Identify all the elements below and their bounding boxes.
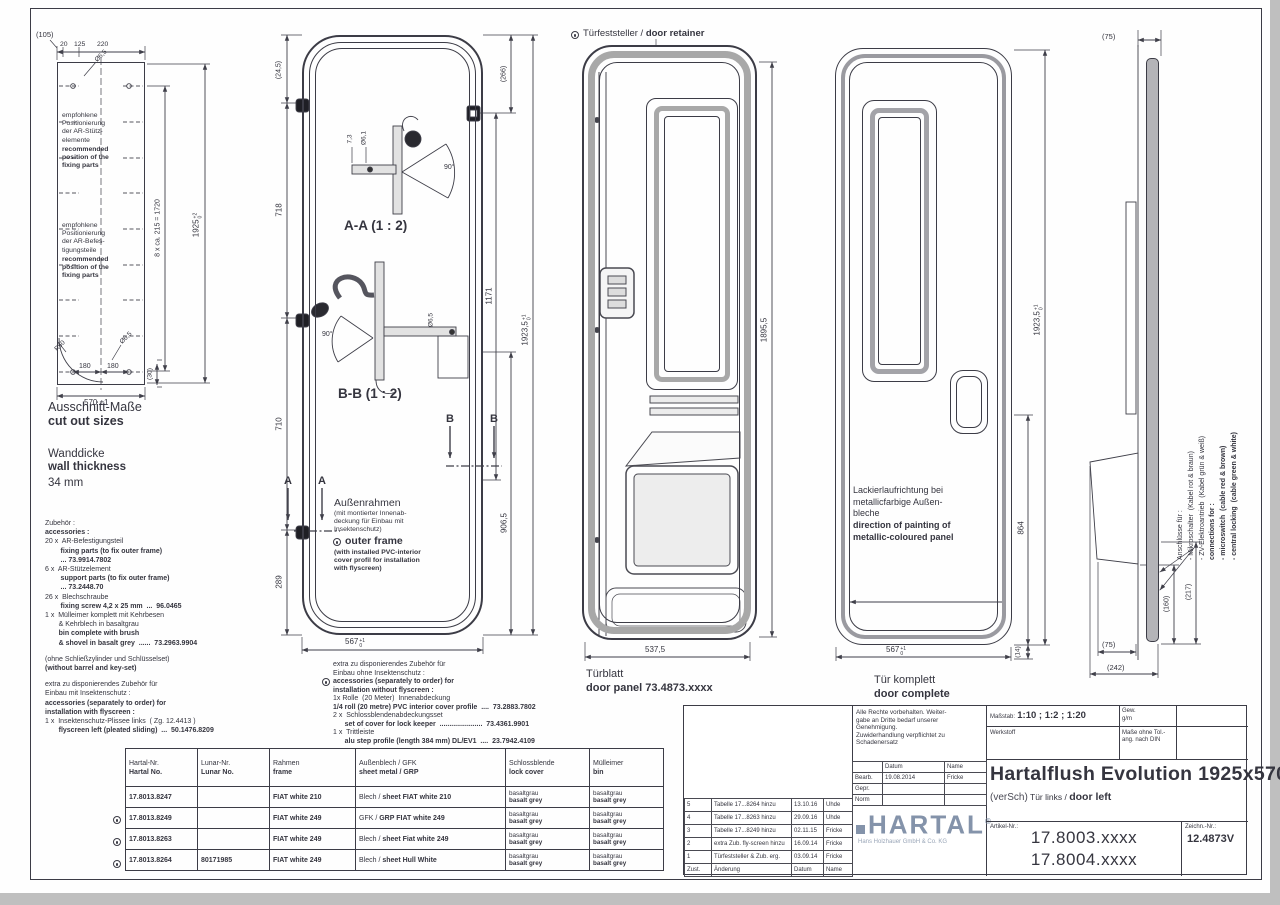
dim-label: 1923,5+10 bbox=[1032, 304, 1043, 335]
note-text: recommended position of the fixing parts bbox=[62, 256, 109, 281]
list-item: - ZV-Elektroantrieb (Kabel grün & weiß) bbox=[1198, 324, 1209, 560]
list-item: accessories : bbox=[45, 528, 214, 537]
frame-note-body: (with installed PVC-interior cover profi… bbox=[334, 549, 421, 574]
text-bold: accessories : bbox=[45, 529, 89, 536]
reference-balloon-icon bbox=[322, 678, 330, 686]
text-normal: & Kehrblech in basaltgrau bbox=[45, 621, 139, 628]
column-header: Außenblech / GFKsheet metal / GRP bbox=[356, 749, 506, 787]
text-bold: accessories (separately to order) for bbox=[333, 678, 454, 685]
dim-label: 1925+20 bbox=[191, 213, 202, 238]
divider bbox=[986, 821, 1248, 822]
dim-label: 125 bbox=[74, 41, 85, 48]
list-item: accessories (separately to order) for bbox=[45, 699, 214, 708]
dim-label: 20 bbox=[60, 41, 68, 48]
screenshot-root: { "sheet": {"ink":"#35353f","logo_color"… bbox=[0, 0, 1280, 905]
list-item: 2 x Schlossblendenabdeckungsset bbox=[333, 712, 536, 721]
text-bold: connections for : bbox=[1209, 503, 1216, 560]
scan-edge-bottom bbox=[0, 893, 1280, 905]
list-item: installation with flyscreen : bbox=[45, 708, 214, 717]
dim-label: 1895,5 bbox=[760, 318, 769, 342]
rev-name: Fricke bbox=[824, 851, 853, 864]
frame-note-title: Außenrahmen bbox=[334, 497, 401, 509]
reference-balloon-icon bbox=[113, 838, 121, 846]
rev-date: 13.10.16 bbox=[792, 799, 824, 812]
wall-thickness-label: Wanddicke bbox=[48, 448, 104, 460]
cell-lunar-no bbox=[198, 829, 270, 850]
cell-bin: basaltgraubasalt grey bbox=[590, 787, 664, 808]
note-text: recommended position of the fixing parts bbox=[62, 146, 109, 171]
cell-hartal-no: 17.8013.8264 bbox=[126, 850, 198, 871]
reference-balloon-icon bbox=[113, 816, 121, 824]
drawing-sheet: (105) 20 125 220 Ø6,5 empfohlene Positio… bbox=[0, 0, 1280, 893]
header-de: Hartal-Nr. bbox=[129, 760, 159, 767]
cell-lock-cover: basaltgraubasalt grey bbox=[506, 850, 590, 871]
list-item: - microswitch (cable red & brown) bbox=[1219, 324, 1230, 560]
text-normal: Einbau mit Insektenschutz : bbox=[45, 690, 131, 697]
list-item: Einbau mit Insektenschutz : bbox=[45, 689, 214, 698]
rev-index: 5 bbox=[685, 799, 712, 812]
cell-bin: basaltgraubasalt grey bbox=[590, 829, 664, 850]
header-en: Hartal No. bbox=[129, 769, 162, 776]
rev-change: Türfeststeller & Zub. erg. bbox=[712, 851, 792, 864]
list-item: & shovel in basalt grey ...... 73.2963.9… bbox=[45, 639, 214, 648]
dim-label: 906,5 bbox=[500, 513, 509, 533]
approval-row: Bearb.19.08.2014Fricke bbox=[853, 773, 987, 784]
section-label: B-B (1 : 2) bbox=[338, 386, 402, 401]
text-normal: 2 x Schlossblendenabdeckungsset bbox=[333, 712, 443, 719]
text-normal: Einbau ohne Insektenschutz : bbox=[333, 670, 425, 677]
extra-accessories-note: extra z​u disponierendes Zubehör fürEinb… bbox=[333, 661, 536, 746]
scale-field: Maßstab: 1:10 ; 1:2 ; 1:20 bbox=[990, 710, 1086, 721]
cell-sheet: Blech / sheet FIAT white 210 bbox=[356, 787, 506, 808]
list-item: 6 x AR-Stützelement bbox=[45, 565, 214, 574]
list-item: 20 x AR-Befestigungsteil bbox=[45, 537, 214, 546]
view-title: door panel 73.4873.xxxx bbox=[586, 682, 713, 694]
article-no-2: 17.8004.xxxx bbox=[994, 850, 1174, 870]
view-title: Türblatt bbox=[586, 668, 623, 680]
text-bold: 1/4 roll (20 metre) PVC interior cover p… bbox=[333, 704, 536, 711]
drawing-no-label: Zeichn.-Nr.: bbox=[1185, 824, 1216, 830]
rev-footer: Zust. bbox=[685, 864, 712, 877]
rev-index: 1 bbox=[685, 851, 712, 864]
dim-label: (75) bbox=[1102, 32, 1115, 41]
header-de: Mülleimer bbox=[593, 760, 623, 767]
wall-thickness-value: 34 mm bbox=[48, 477, 83, 489]
text-bold: fixing parts (to fix outer frame) bbox=[45, 548, 162, 555]
cut-letter: B bbox=[446, 413, 454, 425]
text-normal: 1 x Mülleimer komplett mit Kehrbesen bbox=[45, 612, 164, 619]
approval-row: Gepr. bbox=[853, 784, 987, 795]
header-en: sheet metal / GRP bbox=[359, 769, 419, 776]
cell-sheet: GFK / GRP FIAT white 249 bbox=[356, 808, 506, 829]
title-block: 5 Tabelle 17...8264 hinzu 13.10.16 Uhde … bbox=[683, 705, 1247, 875]
dim-label: 8 x ca. 215 = 1720 bbox=[155, 199, 162, 257]
dim-label: (160) bbox=[1164, 596, 1171, 612]
painting-note: Lackierlaufrichtung bei metallicfarbige … bbox=[853, 485, 943, 520]
table-row: 17.8013.8247 FIAT white 210 Blech / shee… bbox=[126, 787, 664, 808]
cut-letter: A bbox=[284, 475, 292, 487]
door-handle-recess bbox=[956, 376, 982, 428]
list-item: support parts (to fix outer frame) bbox=[45, 574, 214, 583]
revision-row: 1 Türfeststeller & Zub. erg. 03.09.14 Fr… bbox=[685, 851, 853, 864]
dim-label: (266) bbox=[501, 66, 508, 82]
list-item: extra z​u disponierendes Zubehör für bbox=[333, 661, 536, 670]
list-item: flyscreen left (pleated sliding) ... 50.… bbox=[45, 726, 214, 735]
view-title: Ausschnitt-Maße bbox=[48, 400, 142, 414]
cell-sheet: Blech / sheet Hull White bbox=[356, 850, 506, 871]
table-row: 17.8013.8263 FIAT white 249 Blech / shee… bbox=[126, 829, 664, 850]
list-item: bin complete with brush bbox=[45, 629, 214, 638]
parts-table: Hartal-Nr.Hartal No.Lunar-Nr.Lunar No.Ra… bbox=[125, 748, 664, 871]
list-item bbox=[45, 673, 214, 680]
col-name: Name bbox=[945, 762, 987, 773]
list-item: extra zu disponierendes Zubehör für bbox=[45, 680, 214, 689]
hartal-logo: HARTAL® bbox=[856, 809, 993, 838]
note-text: empfohlene Positionierung der AR-Stütz- … bbox=[62, 112, 105, 145]
list-item: 26 x Blechschraube bbox=[45, 593, 214, 602]
list-item: fixing parts (to fix outer frame) bbox=[45, 547, 214, 556]
accessories-note: Zubehör :accessories :20 x AR-Befestigun… bbox=[45, 519, 214, 735]
list-item: Einbau ohne Insektenschutz : bbox=[333, 670, 536, 679]
text-bold: - central locking (cable green & white) bbox=[1231, 432, 1238, 560]
revision-row: 2 extra Zub. fly-screen hinzu 16.09.14 F… bbox=[685, 838, 853, 851]
text-bold: installation without flyscreen : bbox=[333, 687, 434, 694]
table-header-row: Hartal-Nr.Hartal No.Lunar-Nr.Lunar No.Ra… bbox=[126, 749, 664, 787]
text-bold: bin complete with brush bbox=[45, 630, 139, 637]
revision-row: 3 Tabelle 17...8249 hinzu 02.11.15 Frick… bbox=[685, 825, 853, 838]
text-normal: extra z​u disponierendes Zubehör für bbox=[333, 661, 445, 668]
cell-lunar-no: 80171985 bbox=[198, 850, 270, 871]
header-de: Lunar-Nr. bbox=[201, 760, 230, 767]
reference-balloon-icon bbox=[113, 860, 121, 868]
tolerance-note: Maße ohne Tol.- ang. nach DIN bbox=[1122, 730, 1165, 744]
table-row: 17.8013.8264 80171985 FIAT white 249 Ble… bbox=[126, 850, 664, 871]
rev-footer: Name bbox=[824, 864, 853, 877]
rev-change: Tabelle 17...8263 hinzu bbox=[712, 812, 792, 825]
text-normal: extra zu disponierendes Zubehör für bbox=[45, 681, 157, 688]
legal-text: Alle Rechte vorbehalten. Weiter- gabe an… bbox=[856, 709, 947, 747]
column-header: Mülleimerbin bbox=[590, 749, 664, 787]
revision-row: 4 Tabelle 17...8263 hinzu 29.09.16 Uhde bbox=[685, 812, 853, 825]
list-item: & Kehrblech in basaltgrau bbox=[45, 620, 214, 629]
window-glass bbox=[878, 117, 921, 365]
cell-frame: FIAT white 249 bbox=[270, 808, 356, 829]
divider bbox=[986, 726, 1248, 727]
painting-note: direction of painting of metallic-colour… bbox=[853, 520, 954, 543]
dim-label: 1923,5+10 bbox=[520, 314, 531, 345]
approval-row: Norm bbox=[853, 795, 987, 806]
list-item: 1 x Insektenschutz-Plissee links ( Zg. 1… bbox=[45, 717, 214, 726]
revision-footer-row: Zust. Änderung Datum Name bbox=[685, 864, 853, 877]
column-header: Schlossblendelock cover bbox=[506, 749, 590, 787]
cell-lock-cover: basaltgraubasalt grey bbox=[506, 808, 590, 829]
cell-hartal-no: 17.8013.8249 bbox=[126, 808, 198, 829]
drawing-no-value: 12.4873V bbox=[1187, 833, 1234, 845]
list-item: 1 x Trittleiste bbox=[333, 729, 536, 738]
header-de: Rahmen bbox=[273, 760, 299, 767]
list-item bbox=[45, 648, 214, 655]
note-text: empfohlene Positionierung der AR-Befes- … bbox=[62, 222, 105, 255]
dim-label: 537,5 bbox=[645, 645, 665, 654]
dim-label: 90° bbox=[444, 164, 455, 171]
text-bold: fixing screw 4,2 x 25 mm ... 96.0465 bbox=[45, 603, 182, 610]
cell-hartal-no: 17.8013.8263 bbox=[126, 829, 198, 850]
drawing-title: Hartalflush Evolution 1925x570 bbox=[990, 763, 1280, 786]
rev-index: 3 bbox=[685, 825, 712, 838]
text-bold: set of cover for lock keeper ...........… bbox=[333, 721, 529, 728]
cell-frame: FIAT white 210 bbox=[270, 787, 356, 808]
rev-name: Uhde bbox=[824, 799, 853, 812]
rev-date: 03.09.14 bbox=[792, 851, 824, 864]
header-en: lock cover bbox=[509, 769, 544, 776]
connections-note: Anschlüsse für :- Mikroschalter (Kabel r… bbox=[1176, 324, 1241, 560]
list-item: alu step profile (length 384 mm) DL/EV1 … bbox=[333, 738, 536, 747]
text-bold: installation with flyscreen : bbox=[45, 709, 135, 716]
divider bbox=[986, 759, 1248, 760]
cut-letter: A bbox=[318, 475, 326, 487]
text-normal: - Mikroschalter (Kabel rot & braun) bbox=[1188, 451, 1195, 560]
cell-lock-cover: basaltgraubasalt grey bbox=[506, 787, 590, 808]
cell-bin: basaltgraubasalt grey bbox=[590, 808, 664, 829]
col-datum: Datum bbox=[883, 762, 945, 773]
dim-label: (24,5) bbox=[276, 61, 283, 79]
text-normal: - ZV-Elektroantrieb (Kabel grün & weiß) bbox=[1199, 436, 1206, 560]
text-bold: accessories (separately to order) for bbox=[45, 700, 166, 707]
approval-header: DatumName bbox=[853, 762, 987, 773]
table-row: 17.8013.8249 FIAT white 249 GFK / GRP FI… bbox=[126, 808, 664, 829]
header-de: Schlossblende bbox=[509, 760, 555, 767]
cell-frame: FIAT white 249 bbox=[270, 829, 356, 850]
header-en: frame bbox=[273, 769, 292, 776]
cell-bin: basaltgraubasalt grey bbox=[590, 850, 664, 871]
text-bold: - microswitch (cable red & brown) bbox=[1220, 446, 1227, 560]
dim-label: 180 bbox=[79, 363, 91, 370]
text-bold: alu step profile (length 384 mm) DL/EV1 … bbox=[333, 738, 535, 745]
text-bold: flyscreen left (pleated sliding) ... 50.… bbox=[45, 727, 214, 734]
dim-label: (30) bbox=[147, 368, 154, 380]
material-label: Werkstoff bbox=[990, 730, 1015, 736]
reference-balloon-icon bbox=[333, 538, 341, 546]
rev-date: 02.11.15 bbox=[792, 825, 824, 838]
list-item: 1x Rolle (20 Meter) Innenabdeckung bbox=[333, 695, 536, 704]
text-normal: Anschlüsse für : bbox=[1177, 510, 1184, 560]
logo-square-icon bbox=[856, 825, 865, 834]
rev-change: Tabelle 17...8264 hinzu bbox=[712, 799, 792, 812]
text-bold: & shovel in basalt grey ...... 73.2963.9… bbox=[45, 640, 197, 647]
column-header: Hartal-Nr.Hartal No. bbox=[126, 749, 198, 787]
list-item: installation without flyscreen : bbox=[333, 687, 536, 696]
list-item: fixing screw 4,2 x 25 mm ... 96.0465 bbox=[45, 602, 214, 611]
article-no-1: 17.8003.xxxx bbox=[994, 828, 1174, 848]
text-normal: Zubehör : bbox=[45, 520, 75, 527]
text-normal: (ohne Schließzylinder und Schlüsselset) bbox=[45, 656, 170, 663]
list-item: ... 73.9914.7802 bbox=[45, 556, 214, 565]
rev-index: 4 bbox=[685, 812, 712, 825]
text-bold: ... 73.2448.70 bbox=[45, 584, 103, 591]
text-normal: 6 x AR-Stützelement bbox=[45, 566, 111, 573]
rev-date: 16.09.14 bbox=[792, 838, 824, 851]
list-item: set of cover for lock keeper ...........… bbox=[333, 721, 536, 730]
dim-label: 220 bbox=[97, 41, 108, 48]
text-normal: 1x Rolle (20 Meter) Innenabdeckung bbox=[333, 695, 450, 702]
column-header: Rahmenframe bbox=[270, 749, 356, 787]
rev-change: extra Zub. fly-screen hinzu bbox=[712, 838, 792, 851]
dim-label: 718 bbox=[275, 203, 284, 216]
rev-change: Tabelle 17...8249 hinzu bbox=[712, 825, 792, 838]
reference-balloon-icon bbox=[571, 31, 579, 39]
frame-note-title: outer frame bbox=[345, 535, 403, 547]
view-title: door complete bbox=[874, 688, 950, 700]
divider bbox=[1119, 706, 1120, 759]
text-normal: 26 x Blechschraube bbox=[45, 594, 108, 601]
divider bbox=[1181, 821, 1182, 876]
list-item: - Mikroschalter (Kabel rot & braun) bbox=[1187, 324, 1198, 560]
divider bbox=[1176, 706, 1177, 759]
cell-lunar-no bbox=[198, 787, 270, 808]
weight-unit: g/m bbox=[1122, 716, 1132, 722]
dim-label: (14) bbox=[1015, 646, 1022, 658]
text-normal: 20 x AR-Befestigungsteil bbox=[45, 538, 123, 545]
header-en: Lunar No. bbox=[201, 769, 234, 776]
retainer-label: Türfeststeller / door retainer bbox=[583, 28, 704, 39]
cell-hartal-no: 17.8013.8247 bbox=[126, 787, 198, 808]
section-label: A-A (1 : 2) bbox=[344, 218, 407, 233]
cell-lock-cover: basaltgraubasalt grey bbox=[506, 829, 590, 850]
dim-label: 1171 bbox=[485, 287, 494, 304]
dim-label: (75) bbox=[1102, 640, 1115, 649]
rev-index: 2 bbox=[685, 838, 712, 851]
dim-label: 90° bbox=[322, 331, 333, 338]
cell-lunar-no bbox=[198, 808, 270, 829]
header-en: bin bbox=[593, 769, 604, 776]
view-title: Tür komplett bbox=[874, 674, 935, 686]
approval-table: DatumName Bearb.19.08.2014Fricke Gepr. N… bbox=[852, 761, 987, 806]
dim-label: 289 bbox=[275, 575, 284, 588]
dim-label: 567+10 bbox=[886, 645, 906, 656]
dim-label: 710 bbox=[275, 417, 284, 430]
rev-footer: Änderung bbox=[712, 864, 792, 877]
rev-name: Fricke bbox=[824, 838, 853, 851]
list-item: ... 73.2448.70 bbox=[45, 583, 214, 592]
dim-label: 864 bbox=[1017, 521, 1026, 534]
dim-label: Ø6,1 bbox=[361, 131, 368, 145]
list-item: 1/4 roll (20 metre) PVC interior cover p… bbox=[333, 704, 536, 713]
frame-note-body: (mit montierter Innenab- deckung für Ein… bbox=[334, 510, 407, 535]
list-item: connections for : bbox=[1208, 324, 1219, 560]
dim-label: 7,3 bbox=[347, 134, 354, 143]
list-item: (ohne Schließzylinder und Schlüsselset) bbox=[45, 655, 214, 664]
rev-name: Fricke bbox=[824, 825, 853, 838]
text-normal: 1 x Trittleiste bbox=[333, 729, 374, 736]
dim-label: (105) bbox=[36, 30, 54, 39]
door-side-profile bbox=[1146, 58, 1159, 642]
text-bold: support parts (to fix outer frame) bbox=[45, 575, 169, 582]
header-de: Außenblech / GFK bbox=[359, 760, 417, 767]
cell-sheet: Blech / sheet Fiat white 249 bbox=[356, 829, 506, 850]
list-item: Anschlüsse für : bbox=[1176, 324, 1187, 560]
list-item: (without barrel and key-set) bbox=[45, 664, 214, 673]
revision-row: 5 Tabelle 17...8264 hinzu 13.10.16 Uhde bbox=[685, 799, 853, 812]
rev-name: Uhde bbox=[824, 812, 853, 825]
revision-table: 5 Tabelle 17...8264 hinzu 13.10.16 Uhde … bbox=[684, 798, 853, 877]
rev-footer: Datum bbox=[792, 864, 824, 877]
list-item: accessories (separately to order) for bbox=[333, 678, 536, 687]
list-item: Zubehör : bbox=[45, 519, 214, 528]
rev-date: 29.09.16 bbox=[792, 812, 824, 825]
dim-label: 180 bbox=[107, 363, 119, 370]
cut-letter: B bbox=[490, 413, 498, 425]
wall-thickness-label: wall thickness bbox=[48, 461, 126, 473]
logo-subtitle: Hans Holzhauer GmbH & Co. KG bbox=[858, 839, 947, 845]
text-bold: ... 73.9914.7802 bbox=[45, 557, 111, 564]
list-item: 1 x Mülleimer komplett mit Kehrbesen bbox=[45, 611, 214, 620]
dim-label: Ø6,5 bbox=[428, 313, 435, 327]
cell-frame: FIAT white 249 bbox=[270, 850, 356, 871]
dim-label: (242) bbox=[1107, 663, 1125, 672]
view-title: cut out sizes bbox=[48, 414, 124, 428]
text-normal: 1 x Insektenschutz-Plissee links ( Zg. 1… bbox=[45, 718, 196, 725]
dim-label: (217) bbox=[1186, 584, 1193, 600]
text-bold: (without barrel and key-set) bbox=[45, 665, 136, 672]
dim-label: 567+10 bbox=[345, 637, 365, 648]
panel-window-glass bbox=[664, 116, 720, 372]
weight-label: Gew. bbox=[1122, 708, 1136, 714]
list-item: - central locking (cable green & white) bbox=[1230, 324, 1241, 560]
column-header: Lunar-Nr.Lunar No. bbox=[198, 749, 270, 787]
drawing-subtitle: (verSch) Tür links / door left bbox=[990, 791, 1111, 803]
